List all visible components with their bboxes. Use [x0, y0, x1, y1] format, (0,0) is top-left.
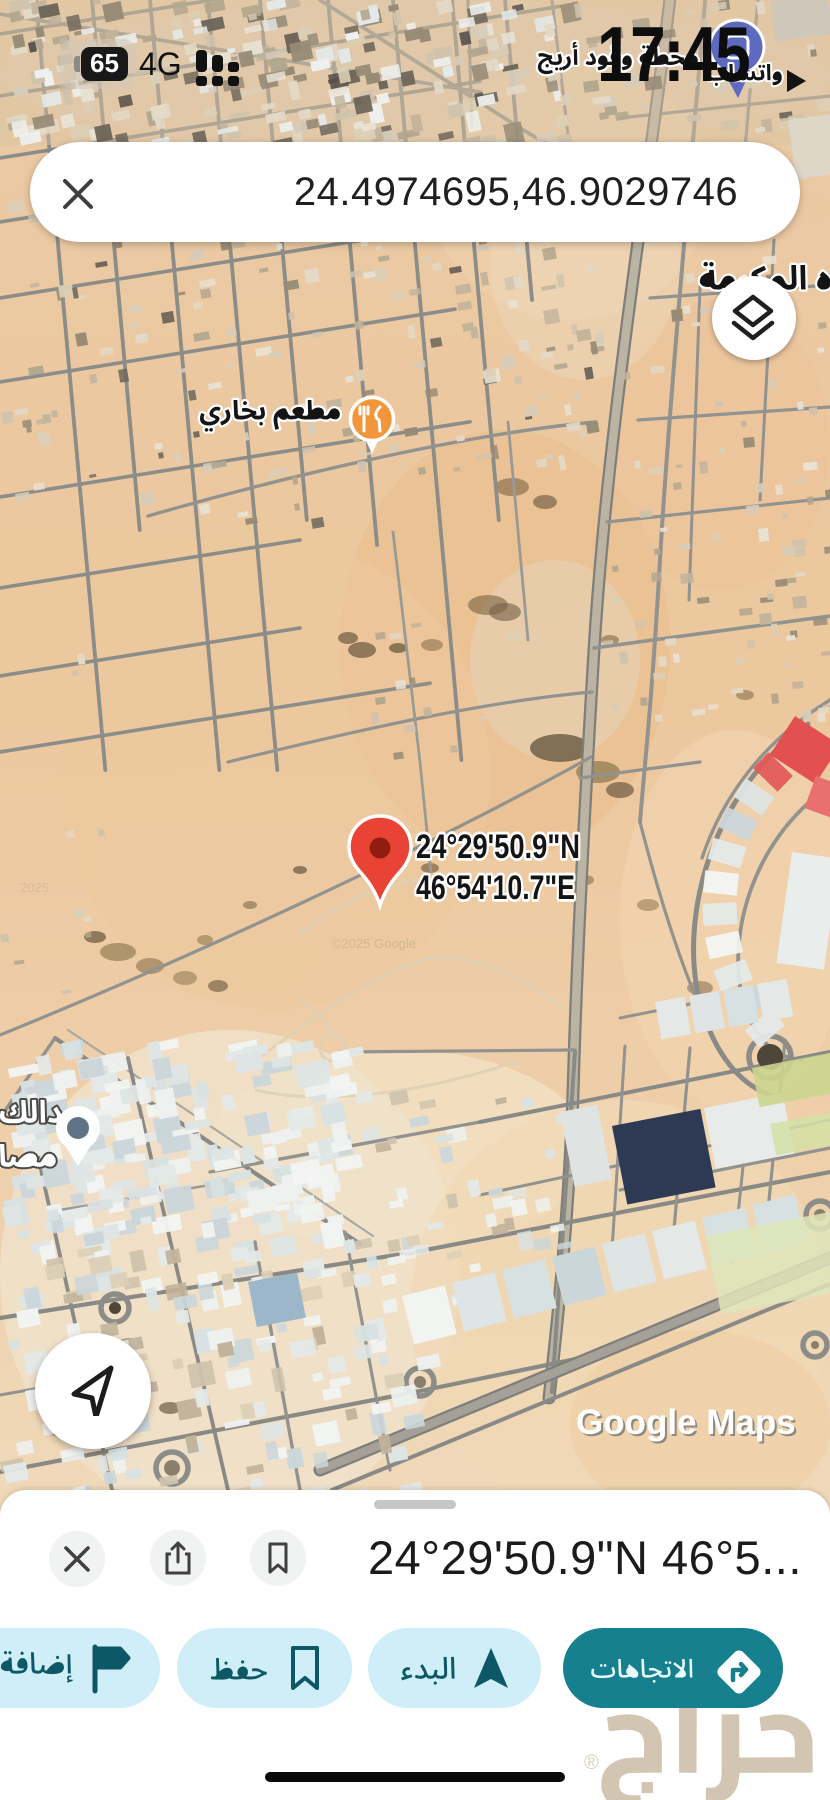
svg-text:24°29'50.9"N: 24°29'50.9"N — [416, 828, 580, 866]
svg-text:Google Maps: Google Maps — [576, 1403, 796, 1442]
svg-text:2025: 2025 — [20, 880, 49, 895]
svg-text:46°54'10.7"E: 46°54'10.7"E — [416, 869, 575, 907]
svg-text:©2025 Google: ©2025 Google — [332, 936, 416, 951]
